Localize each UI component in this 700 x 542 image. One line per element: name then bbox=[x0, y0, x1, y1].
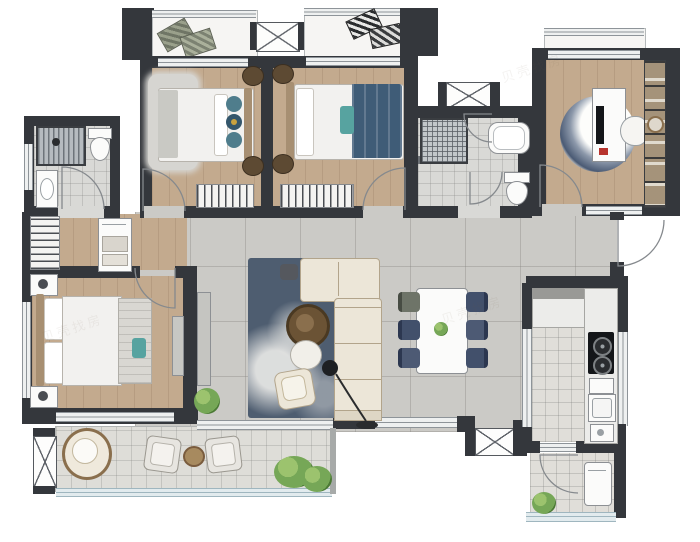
dresser-tray bbox=[102, 236, 128, 252]
wall bbox=[33, 486, 55, 494]
wall bbox=[404, 56, 418, 218]
window bbox=[152, 10, 256, 18]
sofa-main bbox=[334, 298, 382, 416]
wall bbox=[24, 116, 120, 126]
dining-chair bbox=[466, 348, 488, 368]
dining-chair bbox=[466, 320, 488, 340]
shower-drain bbox=[52, 138, 60, 146]
bed-blanket bbox=[158, 90, 178, 158]
basin-bowl bbox=[40, 178, 54, 200]
door-opening-study bbox=[542, 204, 582, 216]
cube-chair-seat bbox=[150, 442, 176, 468]
bathtub-inner bbox=[493, 126, 525, 150]
counter-shadow bbox=[532, 288, 584, 299]
teal-cushion bbox=[132, 338, 146, 358]
shower-area bbox=[36, 126, 86, 166]
window-master-bedroom bbox=[22, 302, 31, 398]
window-bathroom-1 bbox=[24, 144, 33, 190]
ac-platform-x-window bbox=[256, 22, 300, 52]
window-living bbox=[375, 417, 457, 428]
tv-bench bbox=[197, 292, 211, 386]
sink-basin bbox=[592, 398, 612, 418]
nightstand bbox=[272, 64, 294, 84]
armchair-seat bbox=[280, 374, 308, 402]
wall bbox=[438, 82, 446, 108]
wall bbox=[490, 82, 500, 108]
bed-pillow bbox=[296, 88, 314, 156]
duct-shaft bbox=[400, 8, 438, 56]
master-tv-cabinet bbox=[172, 316, 184, 376]
potted-plant bbox=[194, 388, 220, 414]
bookshelf bbox=[644, 60, 666, 208]
washing-machine bbox=[584, 462, 612, 506]
door-opening-bathroom-2 bbox=[458, 206, 500, 218]
sofa-cushion-line bbox=[338, 262, 339, 296]
duct-shaft bbox=[122, 8, 154, 60]
door-opening-bedroom-3 bbox=[363, 206, 403, 218]
door-opening-bathroom-1 bbox=[58, 206, 104, 218]
headboard bbox=[244, 88, 252, 160]
ac-platform-x-window bbox=[475, 428, 515, 456]
window bbox=[304, 8, 402, 16]
cube-chair-seat bbox=[211, 442, 237, 468]
drawer-line bbox=[102, 224, 126, 225]
side-table bbox=[290, 340, 322, 370]
wall bbox=[465, 426, 475, 456]
utility-sliding-door bbox=[540, 443, 576, 452]
accent-pillow bbox=[231, 119, 237, 125]
coffee-table-top bbox=[296, 314, 314, 332]
door-opening-bedroom-2 bbox=[144, 206, 184, 218]
wall bbox=[526, 276, 628, 288]
wardrobe-with-hangers bbox=[196, 184, 254, 208]
door-arc-entry bbox=[618, 220, 664, 266]
wicker-chair-cushion bbox=[72, 438, 98, 464]
window bbox=[544, 28, 644, 36]
balcony-plant bbox=[302, 466, 332, 492]
wall bbox=[664, 48, 680, 216]
desk-accessory bbox=[599, 148, 608, 155]
kitchen-appliance-panel bbox=[589, 378, 614, 394]
round-side-table bbox=[183, 446, 205, 467]
shower-area bbox=[420, 118, 468, 164]
dining-chair bbox=[398, 320, 420, 340]
dining-chair bbox=[398, 292, 420, 312]
window-bedroom-3 bbox=[306, 57, 400, 66]
dining-chair bbox=[398, 348, 420, 368]
monitor bbox=[596, 106, 604, 144]
wardrobe-with-hangers bbox=[280, 184, 354, 208]
wall-between-bedrooms bbox=[261, 66, 273, 208]
floor-plan: 贝壳找房 贝壳找房 贝壳找房 bbox=[0, 0, 700, 542]
wall bbox=[33, 428, 55, 436]
ac-platform-x-window bbox=[33, 436, 57, 488]
table-lamp bbox=[38, 391, 48, 401]
sofa-chaise bbox=[300, 258, 380, 302]
wall bbox=[610, 212, 624, 220]
sofa-armrest bbox=[334, 410, 382, 421]
nook-wardrobe bbox=[30, 216, 60, 270]
bed-pillow bbox=[44, 342, 64, 384]
burner bbox=[593, 356, 612, 375]
navy-duvet bbox=[352, 84, 402, 158]
stool bbox=[280, 264, 298, 280]
potted-plant bbox=[532, 492, 556, 514]
wall bbox=[414, 106, 520, 118]
headboard bbox=[286, 82, 294, 160]
window-bedroom-2 bbox=[158, 58, 248, 67]
kitchen-sliding-door bbox=[522, 329, 532, 429]
balcony-side-frame bbox=[330, 428, 336, 494]
burner bbox=[593, 337, 612, 356]
balcony-sliding-door bbox=[197, 420, 333, 430]
dresser-tray bbox=[102, 254, 128, 266]
arc-floor-lamp-head bbox=[322, 360, 338, 376]
round-pillow bbox=[226, 132, 242, 148]
wall bbox=[520, 441, 540, 453]
balcony-door-master bbox=[56, 412, 174, 422]
master-bed bbox=[62, 296, 122, 386]
sink-drain bbox=[597, 429, 604, 436]
nightstand bbox=[272, 154, 294, 174]
wall bbox=[522, 283, 532, 329]
round-pillow bbox=[226, 96, 242, 112]
teal-cushion bbox=[340, 106, 354, 134]
shelf-decor bbox=[647, 116, 664, 133]
nightstand bbox=[242, 66, 264, 86]
washer-line bbox=[588, 470, 606, 471]
table-lamp bbox=[38, 279, 48, 289]
nightstand bbox=[242, 156, 264, 176]
balcony-glass-railing bbox=[56, 488, 332, 497]
window-kitchen bbox=[618, 332, 628, 426]
